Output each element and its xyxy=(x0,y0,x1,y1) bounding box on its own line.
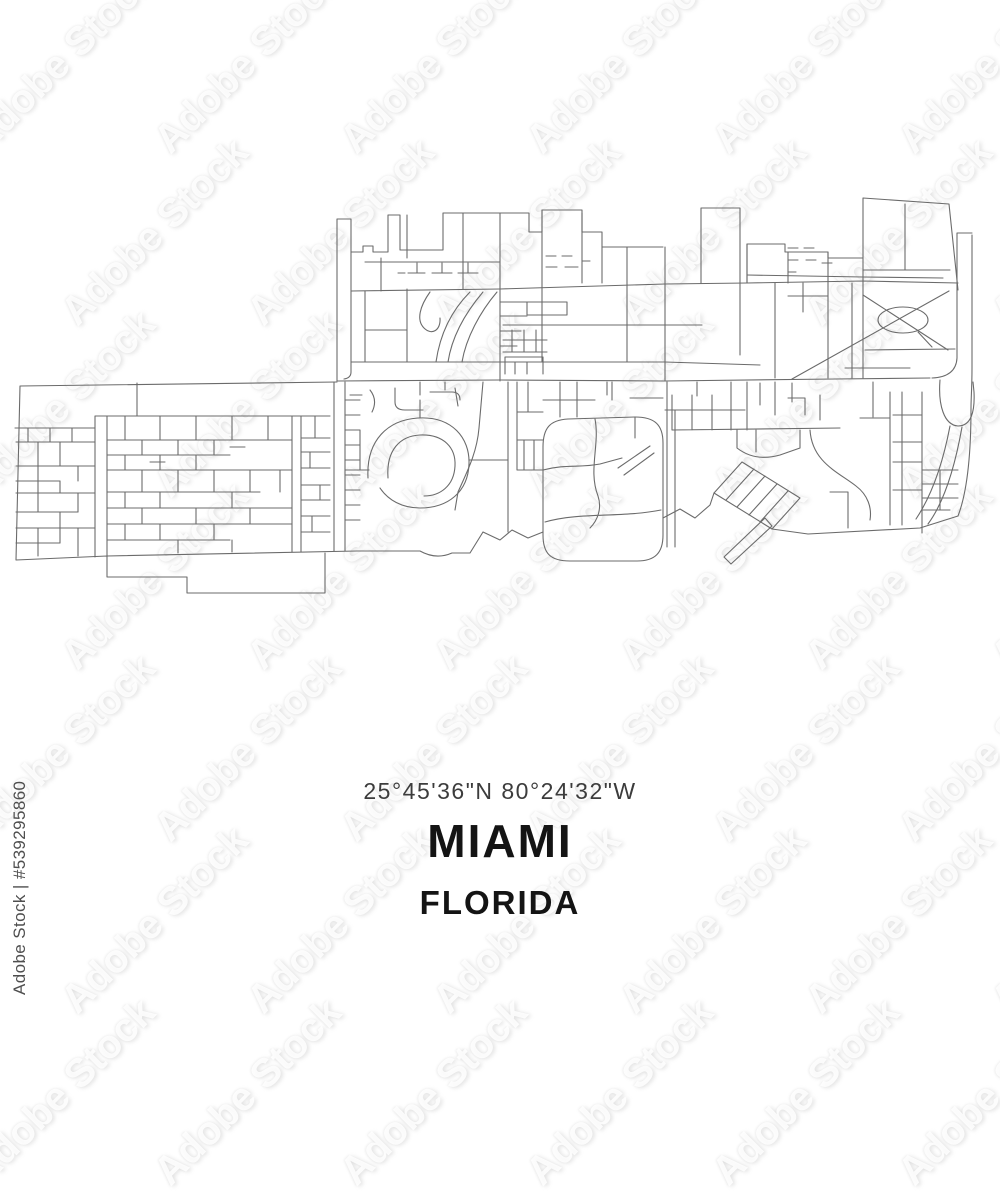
map-coordinates: 25°45'36"N 80°24'32"W xyxy=(0,778,1000,805)
teardrop-loop xyxy=(940,380,975,426)
watermark-tile: Adobe Stock xyxy=(332,990,537,1194)
watermark-tile: Adobe Stock xyxy=(0,990,164,1194)
watermark-tile: Adobe Stock xyxy=(704,990,909,1194)
watermark-tile: Adobe Stock xyxy=(890,990,1000,1194)
street-map-lines xyxy=(15,198,974,593)
watermark-tile: Adobe Stock xyxy=(518,990,723,1194)
watermark-tile: Adobe Stock xyxy=(146,990,351,1194)
ellipse-roundabout xyxy=(878,307,928,333)
state-subtitle: FLORIDA xyxy=(0,886,1000,919)
diagonal-roads xyxy=(792,291,949,379)
marina-piers xyxy=(714,462,800,529)
map-caption: 25°45'36"N 80°24'32"W MIAMI FLORIDA xyxy=(0,778,1000,919)
city-title: MIAMI xyxy=(0,818,1000,864)
